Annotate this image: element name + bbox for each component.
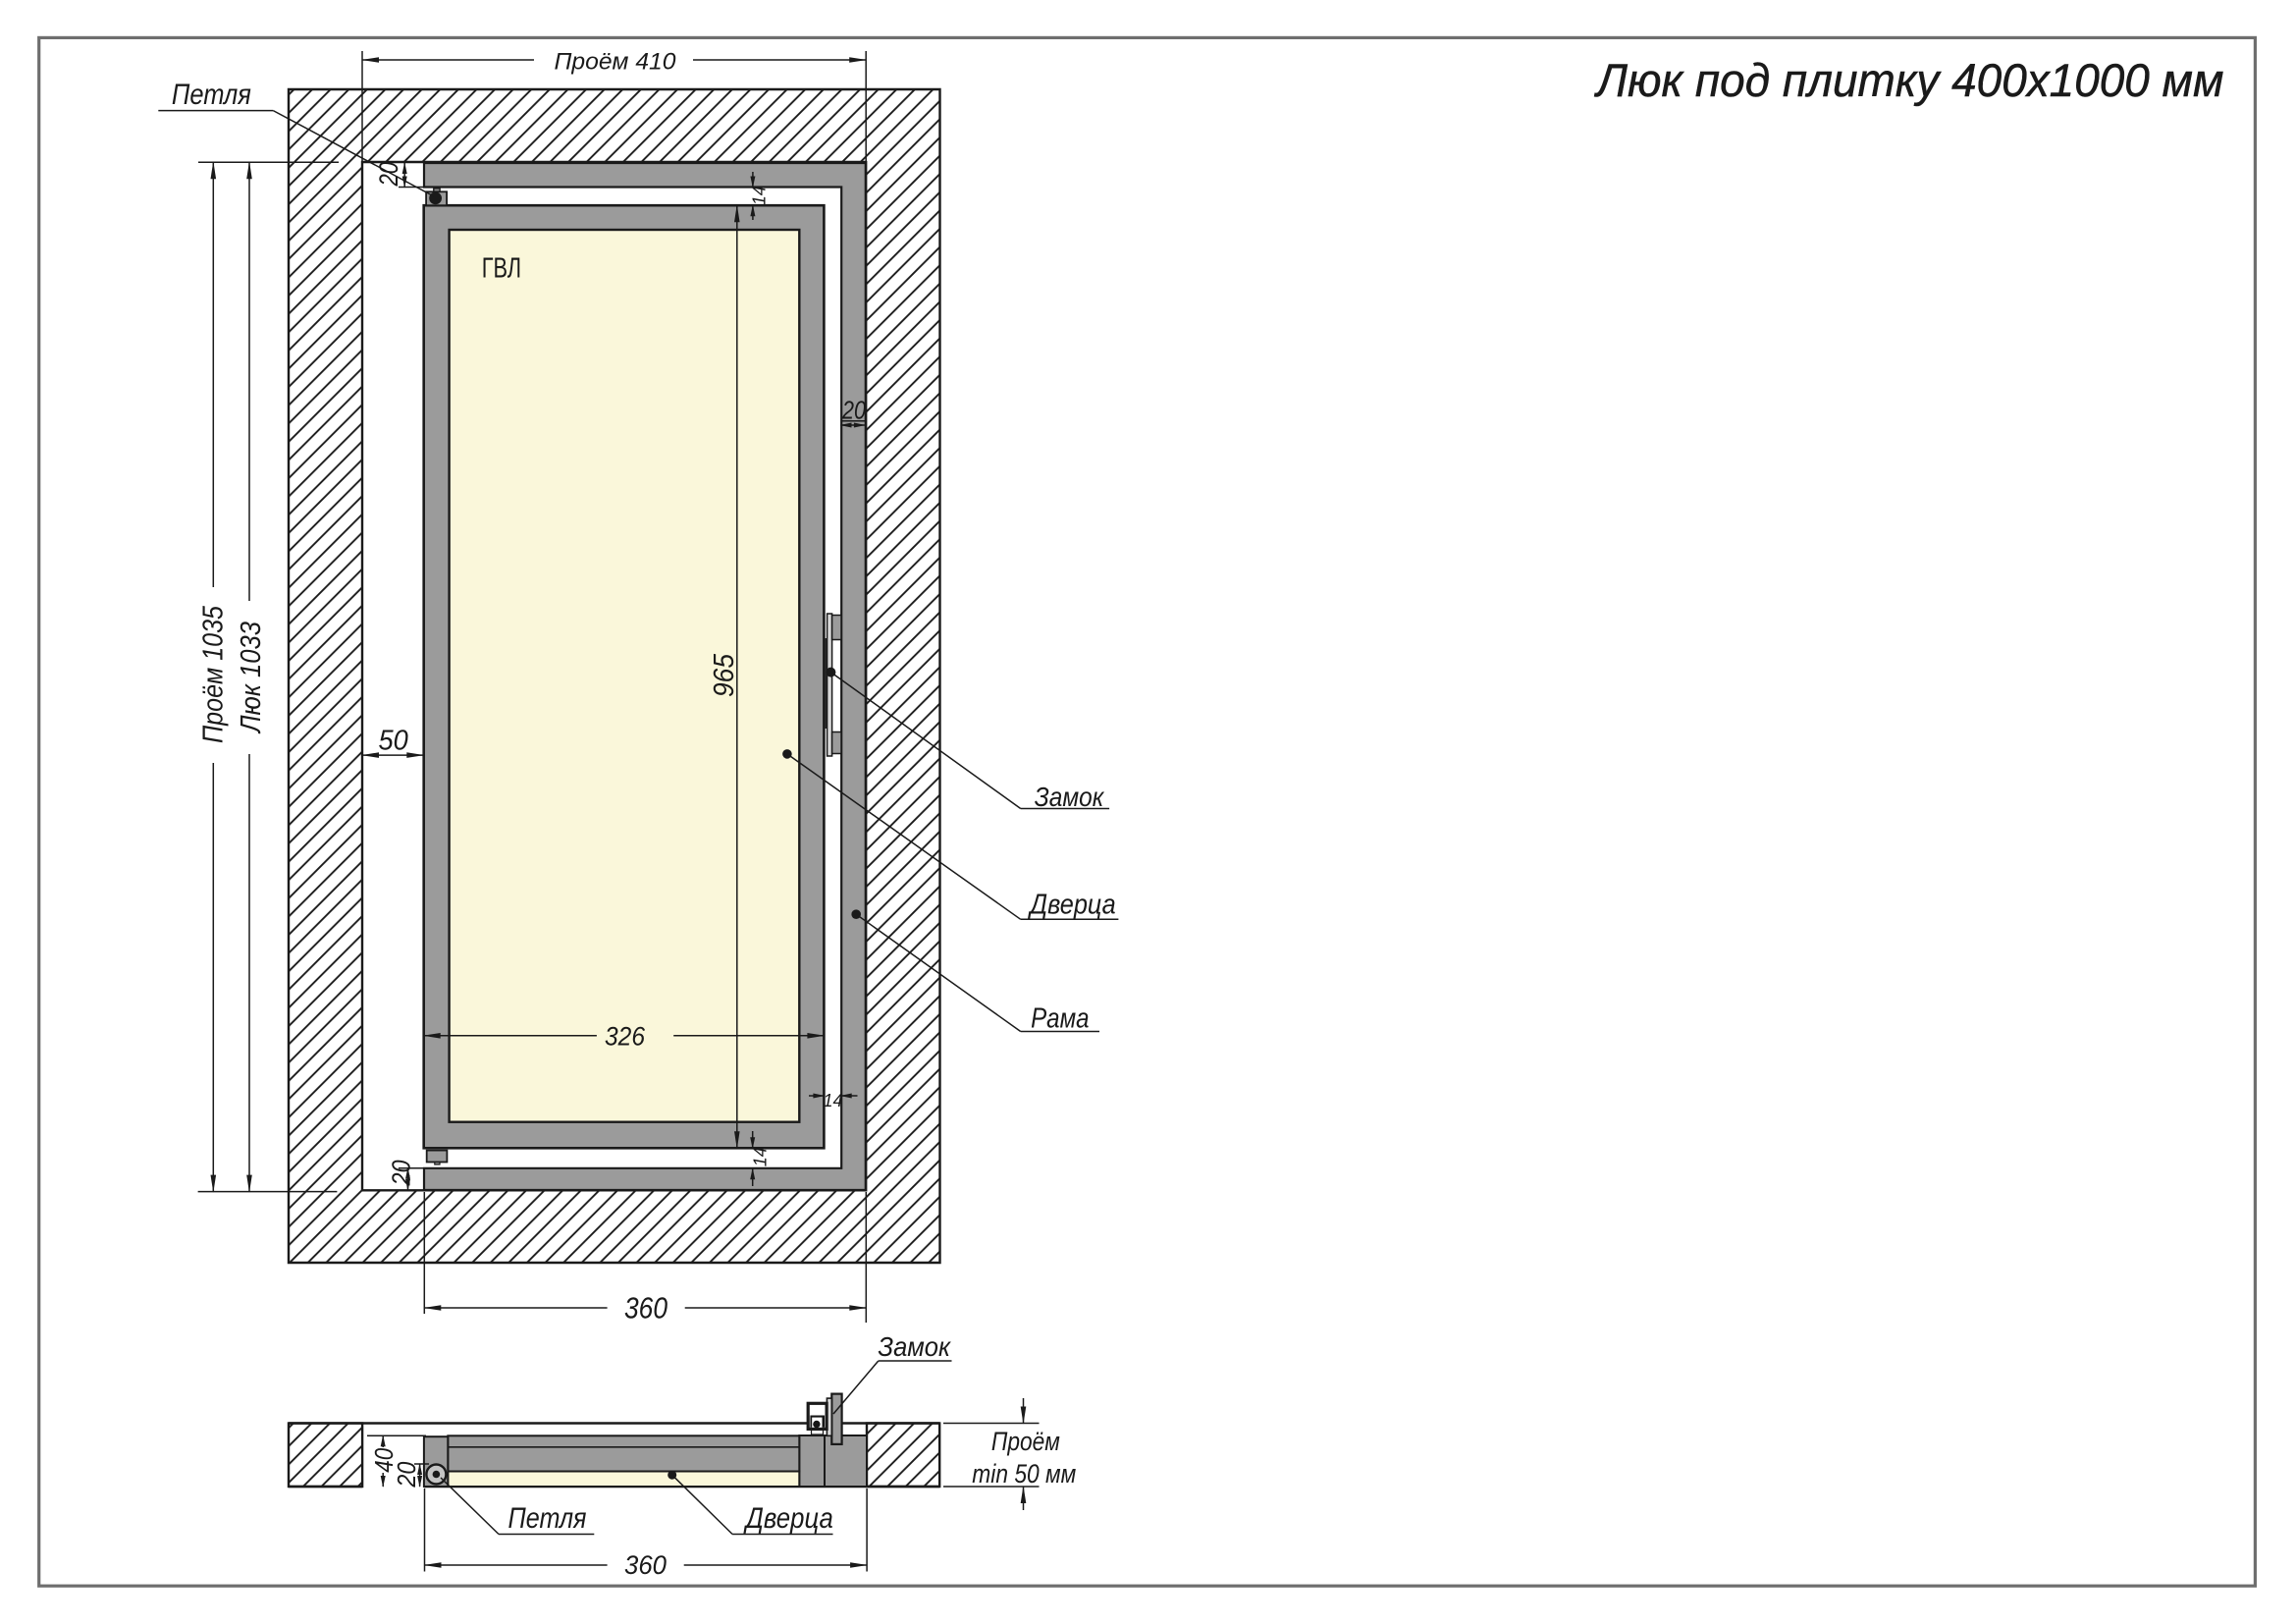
- svg-text:20: 20: [392, 1461, 421, 1488]
- svg-text:20: 20: [387, 1160, 416, 1186]
- svg-text:Рама: Рама: [1031, 1003, 1089, 1035]
- svg-text:14: 14: [749, 186, 769, 205]
- svg-text:326: 326: [605, 1022, 646, 1052]
- svg-text:ГВЛ: ГВЛ: [482, 252, 521, 284]
- svg-text:Замок: Замок: [878, 1331, 951, 1362]
- svg-text:Люк 1033: Люк 1033: [236, 622, 267, 734]
- svg-text:Проём: Проём: [991, 1427, 1060, 1456]
- svg-text:Замок: Замок: [1035, 782, 1105, 812]
- svg-text:360: 360: [624, 1291, 667, 1326]
- svg-text:360: 360: [624, 1550, 667, 1580]
- svg-text:Люк под плитку 400х1000 мм: Люк под плитку 400х1000 мм: [1594, 54, 2224, 106]
- svg-text:14: 14: [824, 1091, 843, 1110]
- svg-text:965: 965: [709, 653, 740, 697]
- svg-text:Петля: Петля: [508, 1502, 587, 1535]
- svg-text:min 50 мм: min 50 мм: [972, 1459, 1076, 1489]
- svg-text:Петля: Петля: [172, 79, 251, 111]
- svg-text:Проём 410: Проём 410: [555, 48, 676, 75]
- svg-text:Проём 1035: Проём 1035: [198, 605, 230, 743]
- svg-text:50: 50: [378, 726, 407, 757]
- svg-text:20: 20: [374, 162, 403, 187]
- svg-text:Дверца: Дверца: [1028, 890, 1116, 921]
- svg-text:20: 20: [841, 396, 866, 425]
- svg-text:14: 14: [751, 1147, 771, 1166]
- svg-text:Дверца: Дверца: [743, 1502, 833, 1535]
